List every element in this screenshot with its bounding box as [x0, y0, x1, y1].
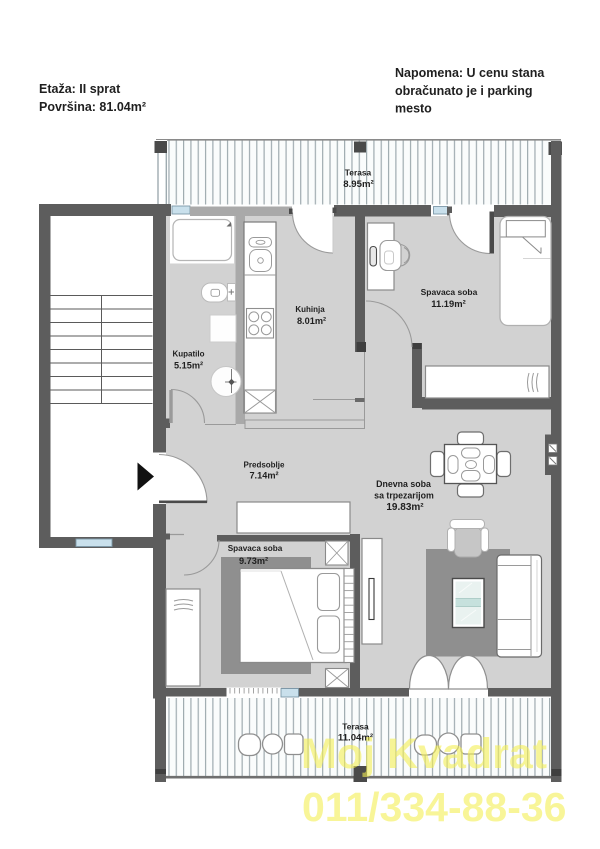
svg-text:Kupatilo: Kupatilo [173, 350, 205, 359]
svg-text:011/334-88-36: 011/334-88-36 [302, 784, 566, 830]
svg-text:sa trpezarijom: sa trpezarijom [374, 491, 434, 501]
svg-text:9.73m²: 9.73m² [239, 556, 268, 566]
svg-text:Površina: 81.04m²: Površina: 81.04m² [39, 100, 146, 114]
svg-text:obračunato je i parking: obračunato je i parking [395, 84, 533, 98]
svg-text:Terasa: Terasa [345, 168, 372, 178]
svg-text:11.19m²: 11.19m² [431, 298, 465, 309]
svg-text:5.15m²: 5.15m² [174, 361, 203, 371]
svg-text:Dnevna soba: Dnevna soba [376, 479, 431, 489]
svg-text:Kuhinja: Kuhinja [295, 305, 325, 314]
svg-text:7.14m²: 7.14m² [249, 471, 278, 481]
svg-text:19.83m²: 19.83m² [386, 502, 424, 513]
svg-text:Predsoblje: Predsoblje [244, 461, 285, 470]
svg-text:Spavaca soba: Spavaca soba [228, 544, 283, 553]
svg-text:8.01m²: 8.01m² [297, 316, 326, 326]
svg-text:mesto: mesto [395, 102, 432, 116]
svg-text:Moj Kvadrat: Moj Kvadrat [301, 730, 547, 778]
svg-text:Spavaca soba: Spavaca soba [421, 287, 478, 297]
svg-text:8.95m²: 8.95m² [343, 179, 373, 190]
svg-text:Napomena: U cenu stana: Napomena: U cenu stana [395, 66, 545, 80]
svg-text:Etaža: II sprat: Etaža: II sprat [39, 82, 121, 96]
